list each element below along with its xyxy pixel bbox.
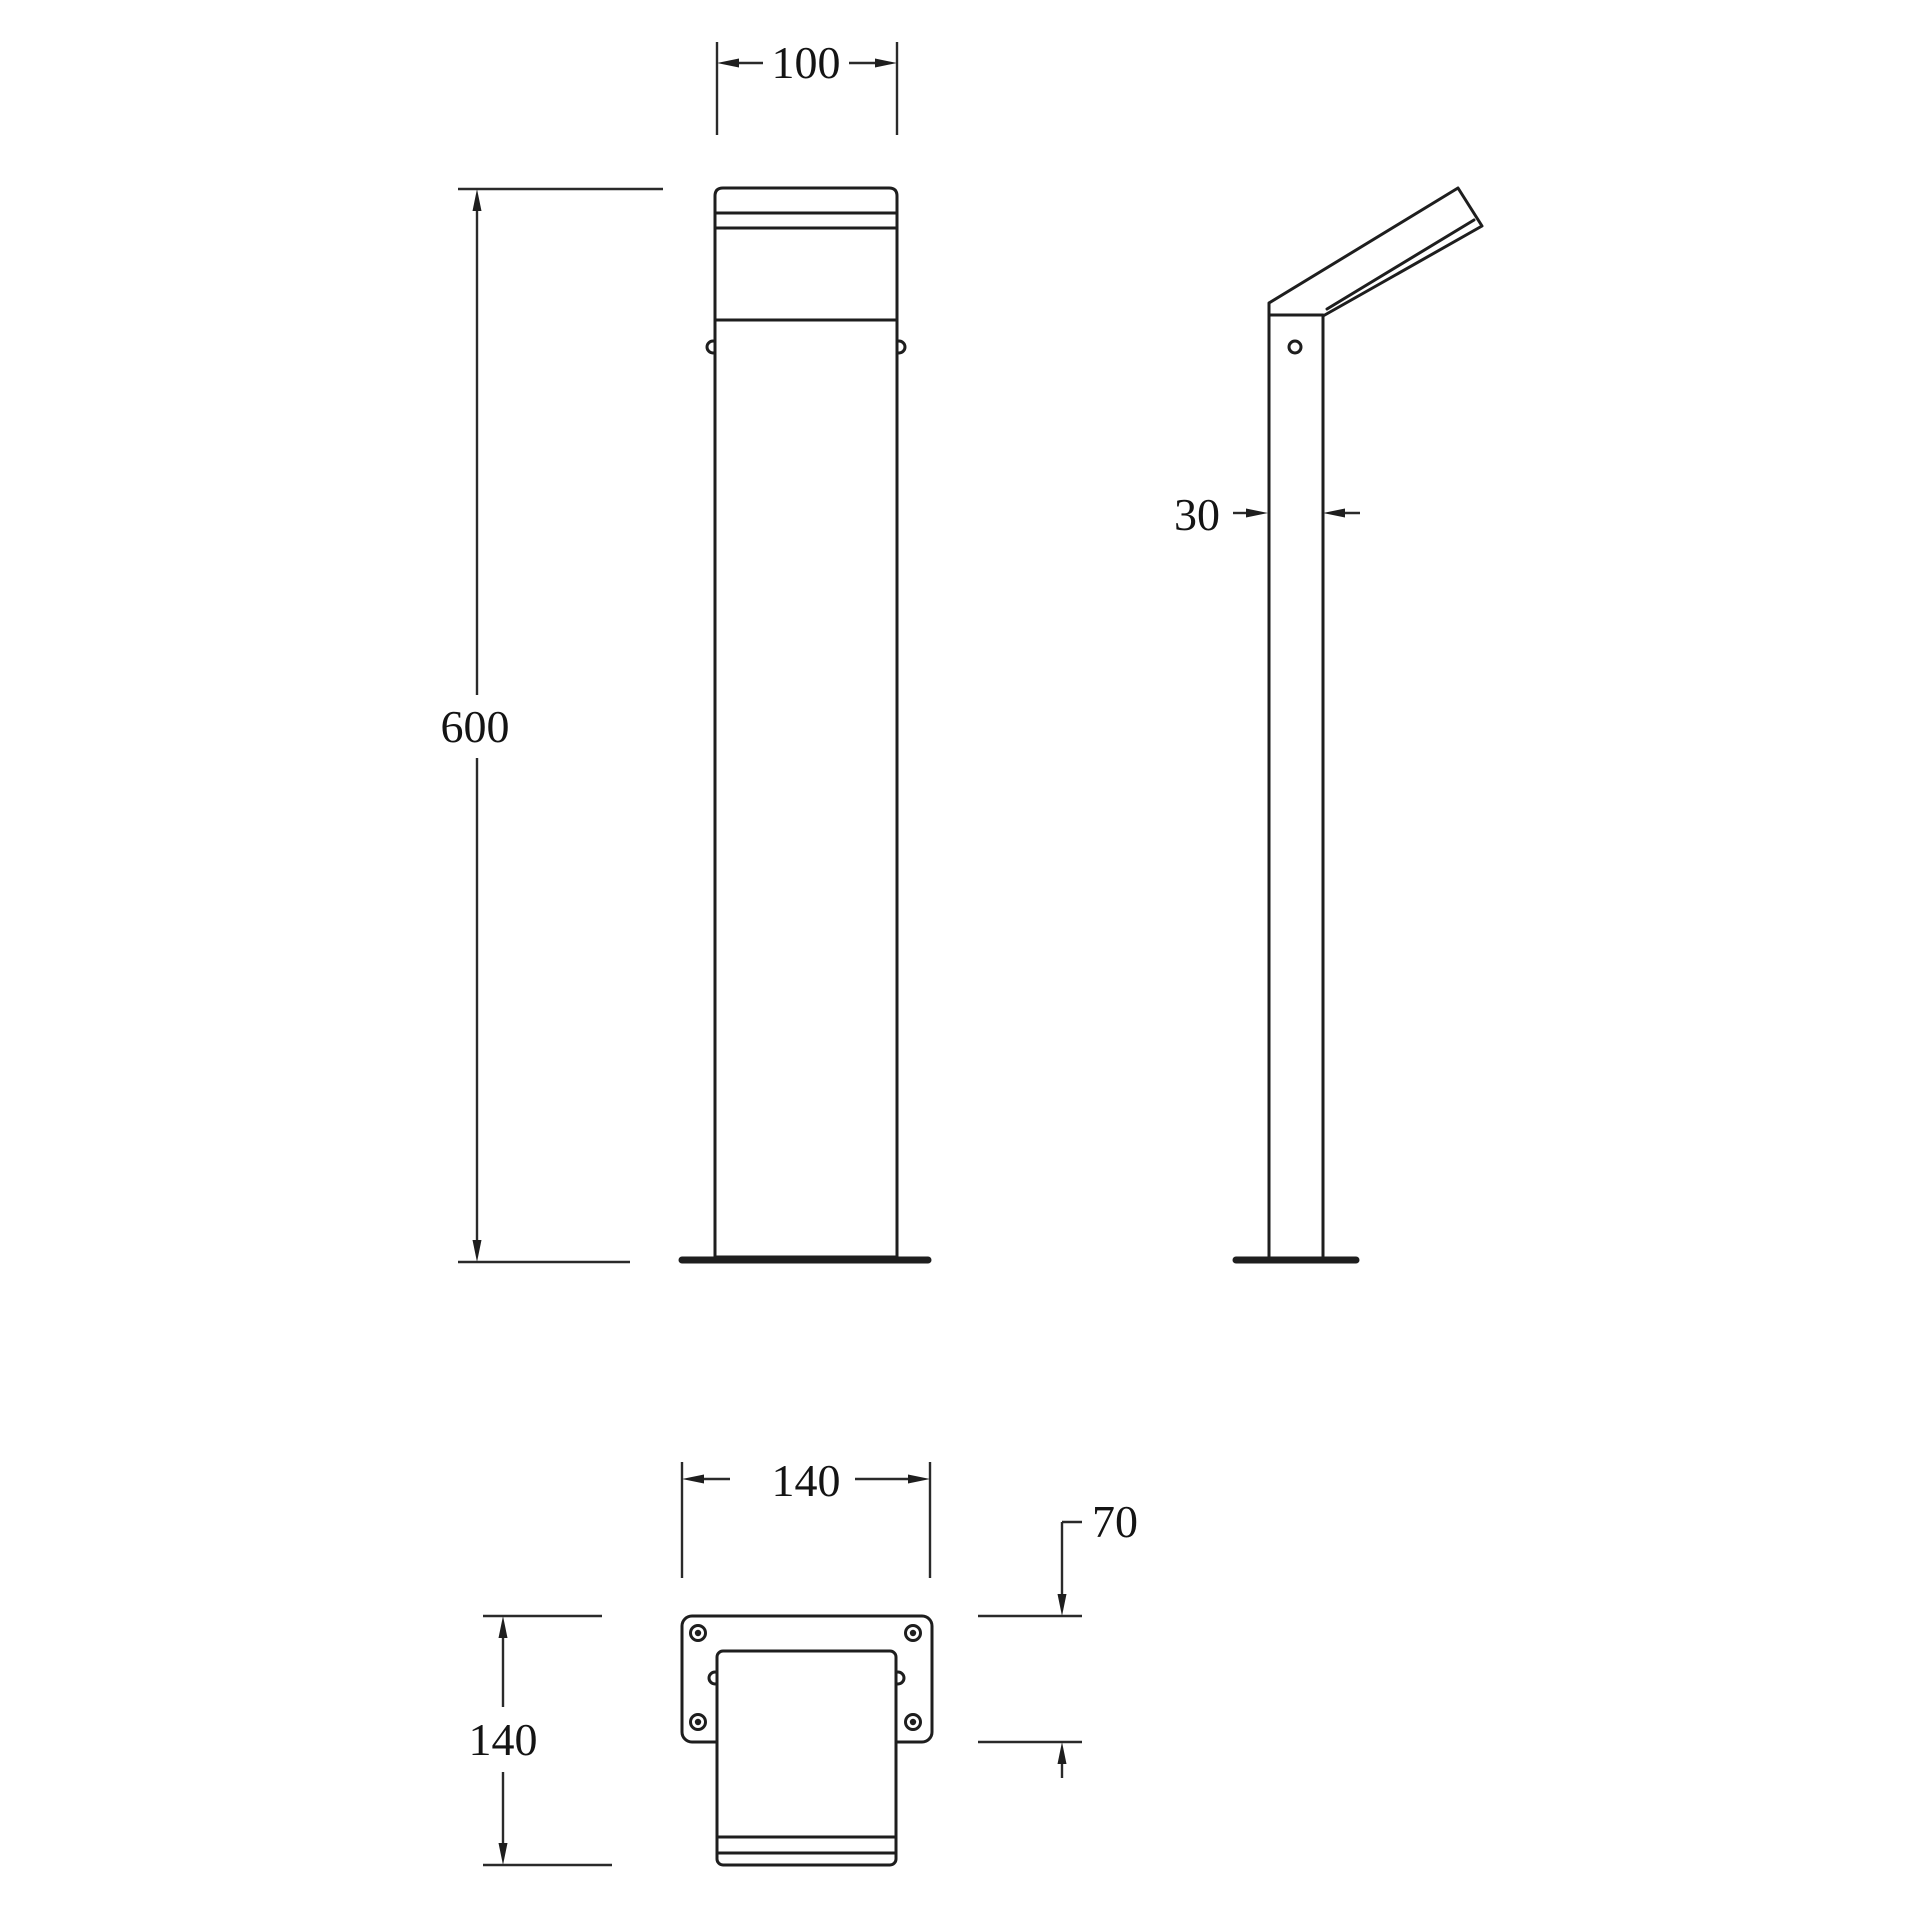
side-view [1236, 188, 1482, 1260]
side-arm-outline [1269, 188, 1482, 316]
arrowhead-left [1323, 509, 1345, 518]
arrowhead-left [682, 1475, 704, 1484]
arrowhead-right [1246, 509, 1268, 518]
bottom-width-dimension: 140 [682, 1455, 930, 1578]
mounting-hole-center [695, 1630, 701, 1636]
arrowhead-right [908, 1475, 930, 1484]
arrowhead-up [1058, 1742, 1067, 1764]
arrowhead-left [717, 59, 739, 68]
mounting-hole-center [695, 1719, 701, 1725]
arrowhead-up [499, 1616, 508, 1638]
dimension-label-bottom-height: 140 [469, 1714, 538, 1765]
front-height-dimension: 600 [441, 189, 664, 1262]
arrowhead-down [499, 1843, 508, 1865]
arrowhead-down [1058, 1594, 1067, 1616]
arrowhead-up [473, 189, 482, 211]
bottom-view [682, 1616, 932, 1865]
dimension-label-bottom-width: 140 [772, 1455, 841, 1506]
arrowhead-down [473, 1240, 482, 1262]
side-depth-dimension: 30 [1174, 489, 1360, 540]
bottom-offset-dimension: 70 [978, 1496, 1138, 1778]
bottom-height-dimension: 140 [469, 1616, 613, 1865]
front-width-dimension: 100 [717, 37, 897, 135]
bottom-post-body [717, 1651, 896, 1865]
dimension-label-front-width: 100 [772, 37, 841, 88]
dimension-label-front-height: 600 [441, 701, 510, 752]
mounting-hole-center [910, 1719, 916, 1725]
front-view [682, 188, 928, 1260]
arrowhead-right [875, 59, 897, 68]
drawing-canvas: 100 600 30 [0, 0, 1920, 1920]
technical-drawing: 100 600 30 [0, 0, 1920, 1920]
dimension-label-side-depth: 30 [1174, 489, 1220, 540]
dimension-label-bottom-offset: 70 [1092, 1496, 1138, 1547]
side-screw-hole [1289, 341, 1301, 353]
front-post-body [715, 188, 897, 1257]
mounting-hole-center [910, 1630, 916, 1636]
